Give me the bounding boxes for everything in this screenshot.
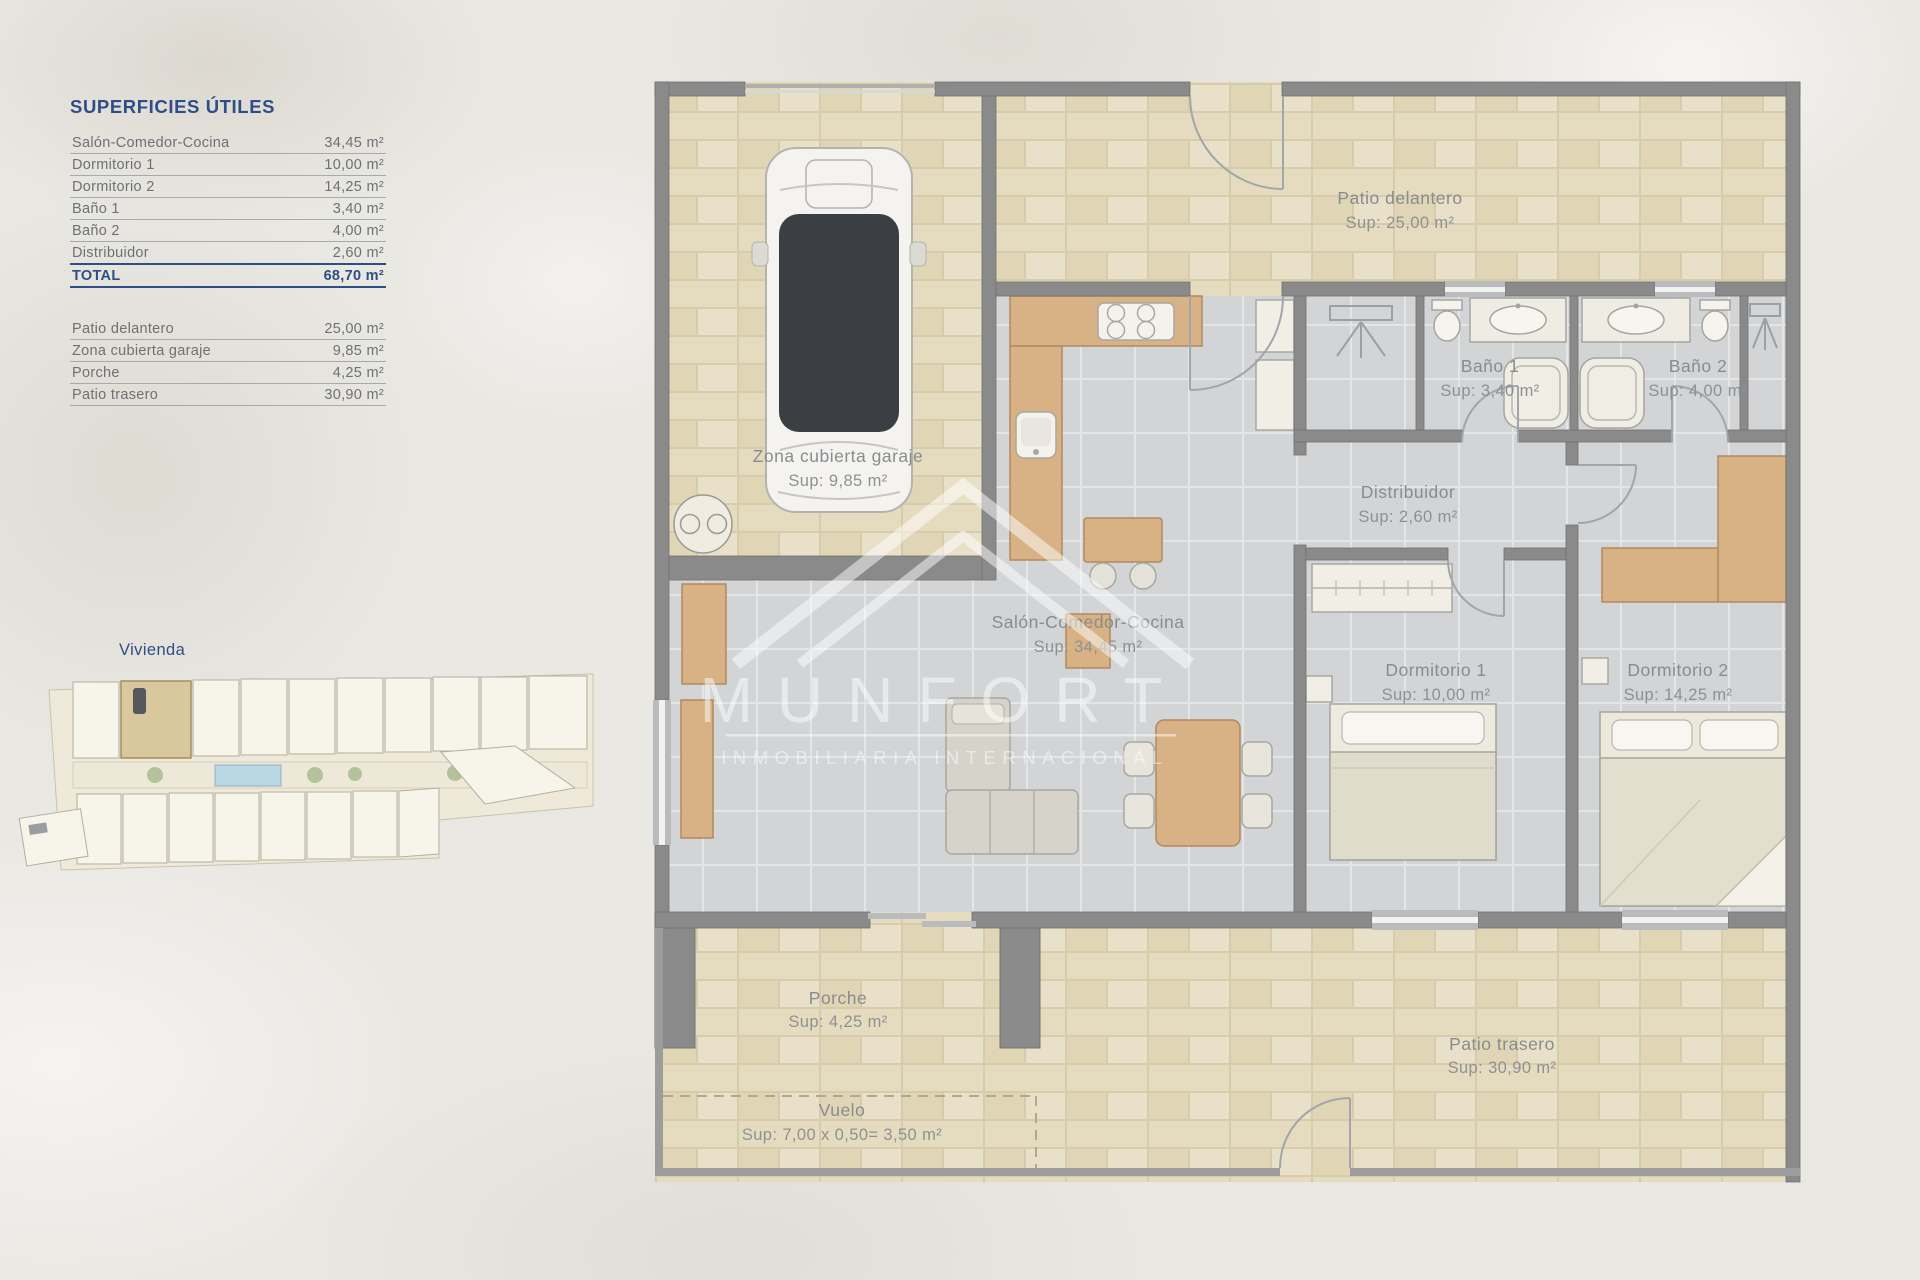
room-sup-porche: Sup: 4,25 m² bbox=[788, 1013, 887, 1031]
table-row: Dormitorio 2 14,25 m² bbox=[70, 176, 386, 198]
row-value: 34,45 m² bbox=[324, 135, 384, 151]
room-sup-patio-delantero: Sup: 25,00 m² bbox=[1346, 214, 1455, 232]
watermark-brand: MUNFORT bbox=[700, 664, 1187, 736]
row-value: 4,25 m² bbox=[333, 365, 384, 381]
table-row: Distribuidor 2,60 m² bbox=[70, 242, 386, 263]
row-label: Salón-Comedor-Cocina bbox=[72, 135, 230, 151]
room-label-garaje: Zona cubierta garaje bbox=[753, 446, 924, 466]
pillow bbox=[1612, 720, 1692, 750]
porch-pillar bbox=[1000, 928, 1040, 1048]
useful-areas-table: Salón-Comedor-Cocina 34,45 m² Dormitorio… bbox=[70, 132, 386, 288]
table-row: Zona cubierta garaje 9,85 m² bbox=[70, 340, 386, 362]
row-label: Dormitorio 2 bbox=[72, 179, 155, 195]
row-label: Porche bbox=[72, 365, 120, 381]
nightstand bbox=[1306, 676, 1332, 702]
room-sup-patio-trasero: Sup: 30,90 m² bbox=[1448, 1059, 1557, 1077]
floorplan-sheet: SUPERFICIES ÚTILES Salón-Comedor-Cocina … bbox=[0, 0, 1920, 1280]
total-row: TOTAL 68,70 m² bbox=[70, 263, 386, 288]
table-row: Porche 4,25 m² bbox=[70, 362, 386, 384]
room-sup-dorm1: Sup: 10,00 m² bbox=[1382, 686, 1491, 704]
chair bbox=[1242, 794, 1272, 828]
row-value: 9,85 m² bbox=[333, 343, 384, 359]
kitchen-appliances bbox=[1256, 300, 1294, 430]
bathtub bbox=[1580, 358, 1644, 428]
pillow bbox=[1700, 720, 1778, 750]
sofa bbox=[946, 790, 1078, 854]
row-value: 2,60 m² bbox=[333, 245, 384, 261]
row-value: 10,00 m² bbox=[324, 157, 384, 173]
room-label-bano2: Baño 2 bbox=[1669, 356, 1727, 376]
row-label: Patio trasero bbox=[72, 387, 158, 403]
table-row: Patio trasero 30,90 m² bbox=[70, 384, 386, 406]
row-label: Distribuidor bbox=[72, 245, 149, 261]
desk bbox=[1718, 456, 1786, 602]
desk bbox=[1602, 548, 1718, 602]
row-value: 68,70 m² bbox=[324, 268, 384, 284]
table-row: Patio delantero 25,00 m² bbox=[70, 318, 386, 340]
table-row: Baño 1 3,40 m² bbox=[70, 198, 386, 220]
row-label: Patio delantero bbox=[72, 321, 174, 337]
room-sup-bano2: Sup: 4,00 m² bbox=[1648, 382, 1747, 400]
room-sup-dorm2: Sup: 14,25 m² bbox=[1624, 686, 1733, 704]
table-row: Dormitorio 1 10,00 m² bbox=[70, 154, 386, 176]
exterior-areas-table: Patio delantero 25,00 m² Zona cubierta g… bbox=[70, 318, 386, 406]
room-label-bano1: Baño 1 bbox=[1461, 356, 1519, 376]
room-sup-distribuidor: Sup: 2,60 m² bbox=[1358, 508, 1457, 526]
garage-water-heater bbox=[674, 495, 732, 553]
chair bbox=[1124, 794, 1154, 828]
room-label-patio-trasero: Patio trasero bbox=[1449, 1034, 1555, 1054]
room-label-distribuidor: Distribuidor bbox=[1361, 482, 1456, 502]
toilet bbox=[1432, 300, 1462, 310]
row-value: 30,90 m² bbox=[324, 387, 384, 403]
room-label-dorm2: Dormitorio 2 bbox=[1627, 660, 1728, 680]
watermark-subtitle: INMOBILIARIA INTERNACIONAL bbox=[721, 747, 1169, 768]
surfaces-panel: SUPERFICIES ÚTILES Salón-Comedor-Cocina … bbox=[70, 96, 386, 406]
room-sup-salon: Sup: 34,45 m² bbox=[1034, 638, 1143, 656]
table-row: Salón-Comedor-Cocina 34,45 m² bbox=[70, 132, 386, 154]
row-value: 14,25 m² bbox=[324, 179, 384, 195]
car-mirror-right bbox=[910, 242, 926, 266]
room-label-vuelo: Vuelo bbox=[819, 1100, 866, 1120]
room-label-dorm1: Dormitorio 1 bbox=[1385, 660, 1486, 680]
table-row: Baño 2 4,00 m² bbox=[70, 220, 386, 242]
pillow bbox=[1342, 712, 1484, 744]
garage-door bbox=[745, 84, 935, 88]
room-sup-bano1: Sup: 3,40 m² bbox=[1440, 382, 1539, 400]
room-label-patio-delantero: Patio delantero bbox=[1337, 188, 1462, 208]
chair bbox=[1242, 742, 1272, 776]
car-mirror-left bbox=[752, 242, 768, 266]
nightstand bbox=[1582, 658, 1608, 684]
site-plan-title: Vivienda bbox=[119, 641, 185, 660]
surfaces-title: SUPERFICIES ÚTILES bbox=[70, 96, 386, 118]
row-value: 25,00 m² bbox=[324, 321, 384, 337]
row-value: 4,00 m² bbox=[333, 223, 384, 239]
row-label: TOTAL bbox=[72, 268, 120, 284]
row-label: Zona cubierta garaje bbox=[72, 343, 211, 359]
row-label: Baño 2 bbox=[72, 223, 120, 239]
stool bbox=[1130, 563, 1156, 589]
room-sup-garaje: Sup: 9,85 m² bbox=[788, 472, 887, 490]
toilet bbox=[1700, 300, 1730, 310]
room-sup-vuelo: Sup: 7,00 x 0,50= 3,50 m² bbox=[742, 1126, 942, 1144]
dining-table bbox=[1156, 720, 1240, 846]
row-label: Dormitorio 1 bbox=[72, 157, 155, 173]
row-value: 3,40 m² bbox=[333, 201, 384, 217]
room-label-porche: Porche bbox=[809, 988, 867, 1008]
watermark-divider bbox=[726, 734, 1176, 737]
row-label: Baño 1 bbox=[72, 201, 120, 217]
sliding-door bbox=[868, 913, 926, 919]
